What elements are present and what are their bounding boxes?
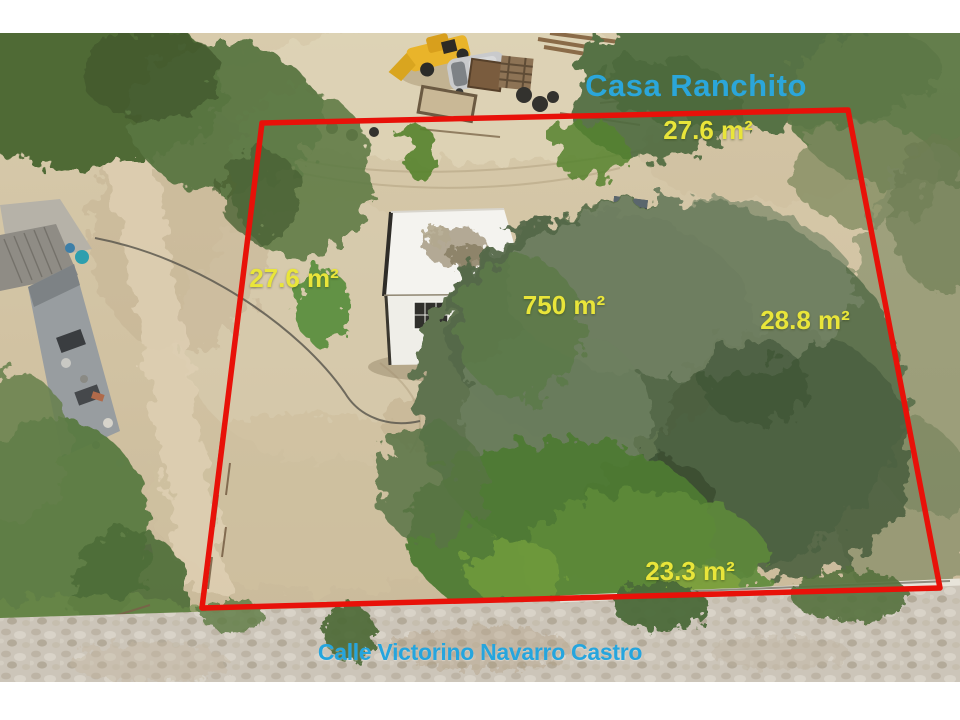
measurement-left-side: 27.6 m² <box>249 265 339 291</box>
annotated-aerial-photo-page: Casa Ranchito 27.6 m² 27.6 m² 750 m² 28.… <box>0 0 960 720</box>
property-title: Casa Ranchito <box>585 70 807 101</box>
pallet-stack <box>498 55 533 90</box>
total-area-label: 750 m² <box>523 292 605 318</box>
street-name-label: Calle Victorino Navarro Castro <box>318 641 642 664</box>
wood-crate <box>468 59 504 91</box>
measurement-top-side: 27.6 m² <box>663 117 753 143</box>
measurement-right-side: 28.8 m² <box>760 307 850 333</box>
measurement-bottom-side: 23.3 m² <box>645 558 735 584</box>
aerial-photo <box>0 33 960 682</box>
